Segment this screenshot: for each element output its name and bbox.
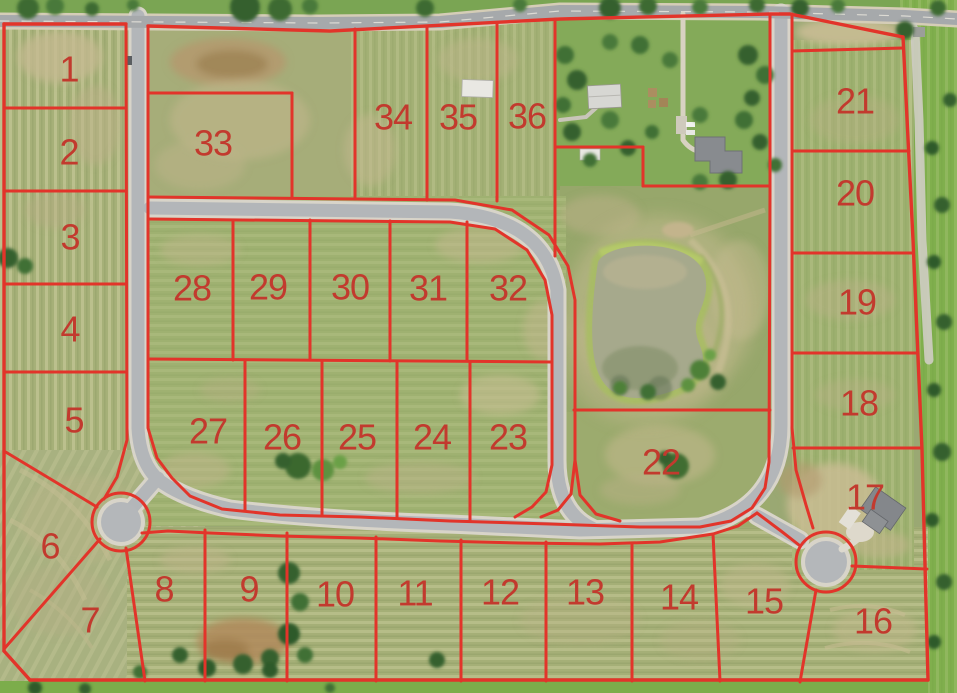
aerial-plat-map: 1234567891011121314151617181920212223242… [0, 0, 957, 693]
lot-4-label: 4 [60, 309, 79, 350]
lot-12-label: 12 [481, 572, 519, 613]
lot-23-label: 23 [489, 417, 527, 458]
lot-5-label: 5 [64, 400, 83, 441]
vehicle [686, 122, 695, 127]
lot-19-label: 19 [838, 282, 876, 323]
lot-30-label: 30 [331, 267, 369, 308]
lot-17-label: 17 [846, 477, 884, 518]
lot-6-label: 6 [40, 526, 59, 567]
lot-2-label: 2 [59, 132, 78, 173]
lot-16-label: 16 [854, 601, 892, 642]
lot-28-label: 28 [173, 268, 211, 309]
lot-15-label: 15 [745, 581, 783, 622]
lot-1-label: 1 [59, 49, 78, 90]
lot-18-label: 18 [840, 383, 878, 424]
lot-33-label: 33 [194, 123, 232, 164]
lot-10-label: 10 [316, 574, 354, 615]
farm-house-1 [587, 84, 621, 109]
lot-32-label: 32 [489, 268, 527, 309]
lot-31-label: 31 [409, 268, 447, 309]
lot-7-label: 7 [80, 600, 99, 641]
lot-34-label: 34 [374, 97, 412, 138]
lot-25-label: 25 [338, 417, 376, 458]
lot-22-label: 22 [642, 442, 680, 483]
lot-9-label: 9 [239, 569, 258, 610]
roadside-structure [913, 27, 925, 37]
lot-11-label: 11 [397, 573, 432, 614]
lot-36-label: 36 [508, 96, 546, 137]
lot-27-label: 27 [189, 411, 227, 452]
lot-14-label: 14 [660, 577, 698, 618]
lot35-shed [462, 79, 494, 97]
lot-26-label: 26 [263, 417, 301, 458]
lot-3-label: 3 [60, 217, 79, 258]
plat-map-svg: 1234567891011121314151617181920212223242… [0, 0, 957, 693]
vehicle [686, 130, 695, 135]
lot-20-label: 20 [836, 173, 874, 214]
lot-21-label: 21 [836, 81, 874, 122]
lot-24-label: 24 [413, 417, 451, 458]
lot-35-label: 35 [439, 97, 477, 138]
lot-13-label: 13 [566, 572, 604, 613]
lot-8-label: 8 [154, 569, 173, 610]
lot-29-label: 29 [249, 267, 287, 308]
